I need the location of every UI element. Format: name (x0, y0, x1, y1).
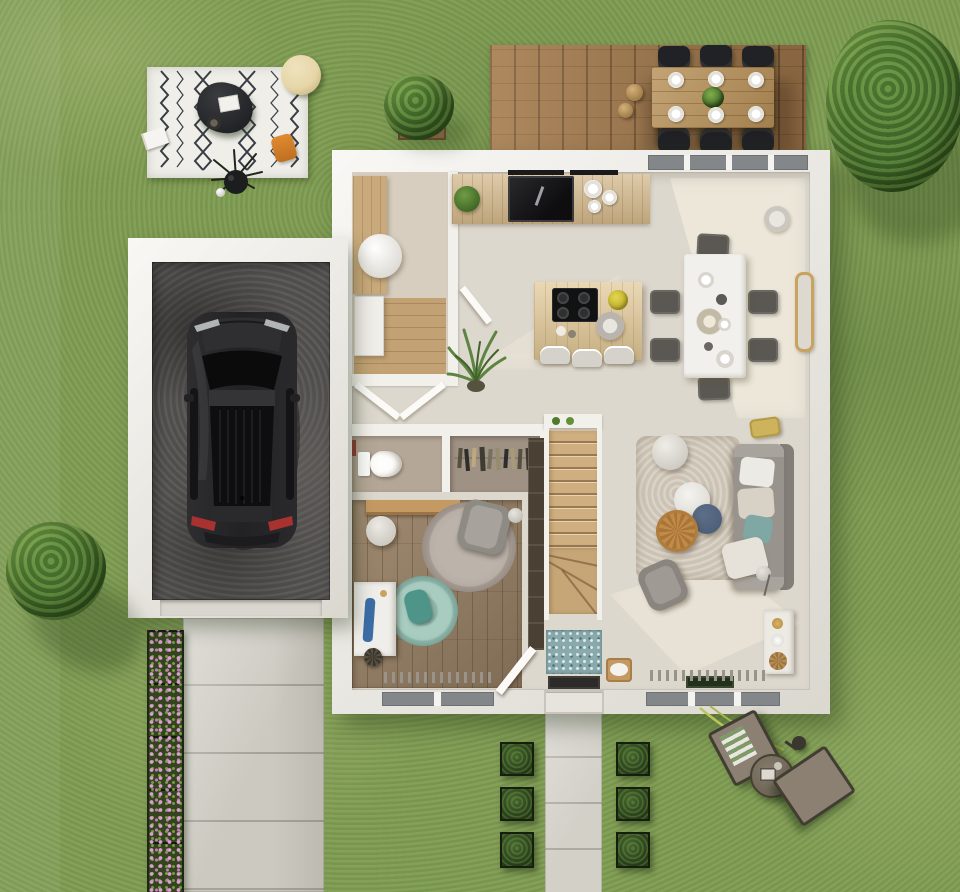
tableware (716, 350, 734, 368)
round-table (358, 234, 402, 278)
kitchen-sink (508, 176, 574, 222)
burner (578, 292, 590, 304)
scene (0, 0, 960, 892)
front-walkway (545, 712, 602, 892)
bedroom-radiator (384, 672, 492, 683)
plate (708, 107, 724, 123)
living-radiator (650, 670, 770, 681)
dining-chair (650, 290, 680, 314)
table-centerpiece-plant (702, 87, 724, 108)
wall-lamp (764, 206, 790, 232)
coffee-table-wood (656, 510, 698, 552)
basket (364, 648, 382, 666)
outdoor-chair (658, 126, 690, 152)
window-band-bedroom (382, 692, 494, 706)
console-table (764, 610, 794, 674)
window-band-top (648, 155, 808, 170)
pouf-white (366, 516, 396, 546)
utility-cabinet (354, 296, 384, 356)
staircase (549, 430, 597, 548)
wall-mirror (795, 272, 814, 352)
terracotta-jug (626, 84, 643, 101)
boxwood-planter (500, 787, 534, 821)
pet-bed (610, 663, 628, 676)
toilet-bowl (370, 451, 402, 477)
console-deco-gold (772, 618, 783, 629)
tray (207, 116, 221, 130)
car (184, 310, 300, 552)
boxwood-planter (616, 742, 650, 776)
sofa-cushion (739, 456, 776, 487)
utility-room (352, 172, 448, 376)
driveway (183, 618, 324, 892)
teapot (774, 762, 782, 770)
tree-top-right (826, 20, 960, 192)
boxwood-planter (500, 832, 534, 868)
island-deco (568, 330, 576, 338)
winder-step-line (561, 570, 597, 614)
wc-room (352, 436, 442, 492)
lounger-towel (719, 726, 757, 766)
yellow-flowers (608, 290, 628, 310)
outdoor-chair (742, 126, 774, 152)
towel (352, 440, 356, 456)
doormat (548, 676, 600, 689)
island-stool (572, 349, 602, 367)
small-ball (216, 188, 225, 197)
wall-wc-top (352, 424, 550, 436)
flower-bed (147, 630, 184, 892)
island-deco (556, 326, 566, 336)
island-stool (540, 346, 570, 364)
hanging-clothes (452, 440, 538, 488)
hood-bar (570, 170, 618, 175)
dining-chair (698, 375, 731, 400)
tableware (718, 318, 731, 331)
plate (748, 72, 764, 88)
living-room (630, 410, 812, 680)
dining-table (684, 254, 746, 378)
landing-plant (566, 417, 574, 425)
window-mullion (434, 692, 441, 706)
sofa-cushion (737, 487, 775, 519)
pouf-living (652, 434, 688, 470)
burner (578, 307, 590, 319)
landing-plant (552, 417, 560, 425)
floor-lamp-ball (508, 508, 523, 523)
yoga-mat-blue (362, 598, 375, 643)
serving-plate (596, 312, 624, 340)
black-potted-plant (204, 142, 268, 204)
wall-wc-closet (442, 436, 450, 492)
window-mullion (768, 155, 774, 170)
front-door (544, 690, 604, 714)
dining-chair (748, 338, 778, 362)
dining-chair (748, 290, 778, 314)
boxwood-planter (616, 832, 650, 868)
counter-bowl (602, 190, 617, 205)
burner (557, 307, 569, 319)
window-mullion (684, 155, 690, 170)
entry-tile-mat (546, 630, 602, 674)
stool-yellow (749, 416, 781, 439)
stairs-stringer-right (597, 428, 602, 620)
indoor-plant (446, 320, 508, 404)
counter-bowl (588, 200, 601, 213)
plate (668, 72, 684, 88)
console-deco-white (771, 634, 784, 647)
winder-step-line (549, 561, 597, 593)
desk (354, 582, 396, 656)
sofa-armrest (734, 444, 784, 457)
island-stool (604, 346, 634, 364)
plate (668, 106, 684, 122)
pouf (281, 55, 321, 95)
stairs-winder (549, 548, 597, 614)
tableware (698, 272, 714, 288)
plate (708, 71, 724, 87)
boxwood-planter (500, 742, 534, 776)
armchair-cushion (642, 563, 683, 606)
desk-deco (380, 590, 387, 597)
window-mullion (726, 155, 732, 170)
counter-bowl (584, 180, 602, 198)
pet-bed-tray (606, 658, 632, 682)
closet (450, 436, 540, 492)
garage-threshold (160, 600, 322, 616)
lounge-cushion (463, 503, 505, 550)
lounge-set (700, 706, 850, 826)
hall-cabinet (528, 438, 544, 650)
bedroom (352, 500, 522, 688)
console-basket (769, 652, 787, 670)
dining-chair (650, 338, 680, 362)
tableware-dark (716, 294, 727, 305)
stairs-landing (544, 414, 602, 428)
boxwood-planter (616, 787, 650, 821)
toilet-tank (358, 452, 370, 476)
burner (557, 292, 569, 304)
plate (748, 106, 764, 122)
island-cooktop (552, 288, 598, 322)
terracotta-jug (618, 103, 633, 118)
tableware-dark (704, 342, 713, 351)
hood-bar (508, 170, 564, 175)
counter-plant (454, 186, 480, 212)
